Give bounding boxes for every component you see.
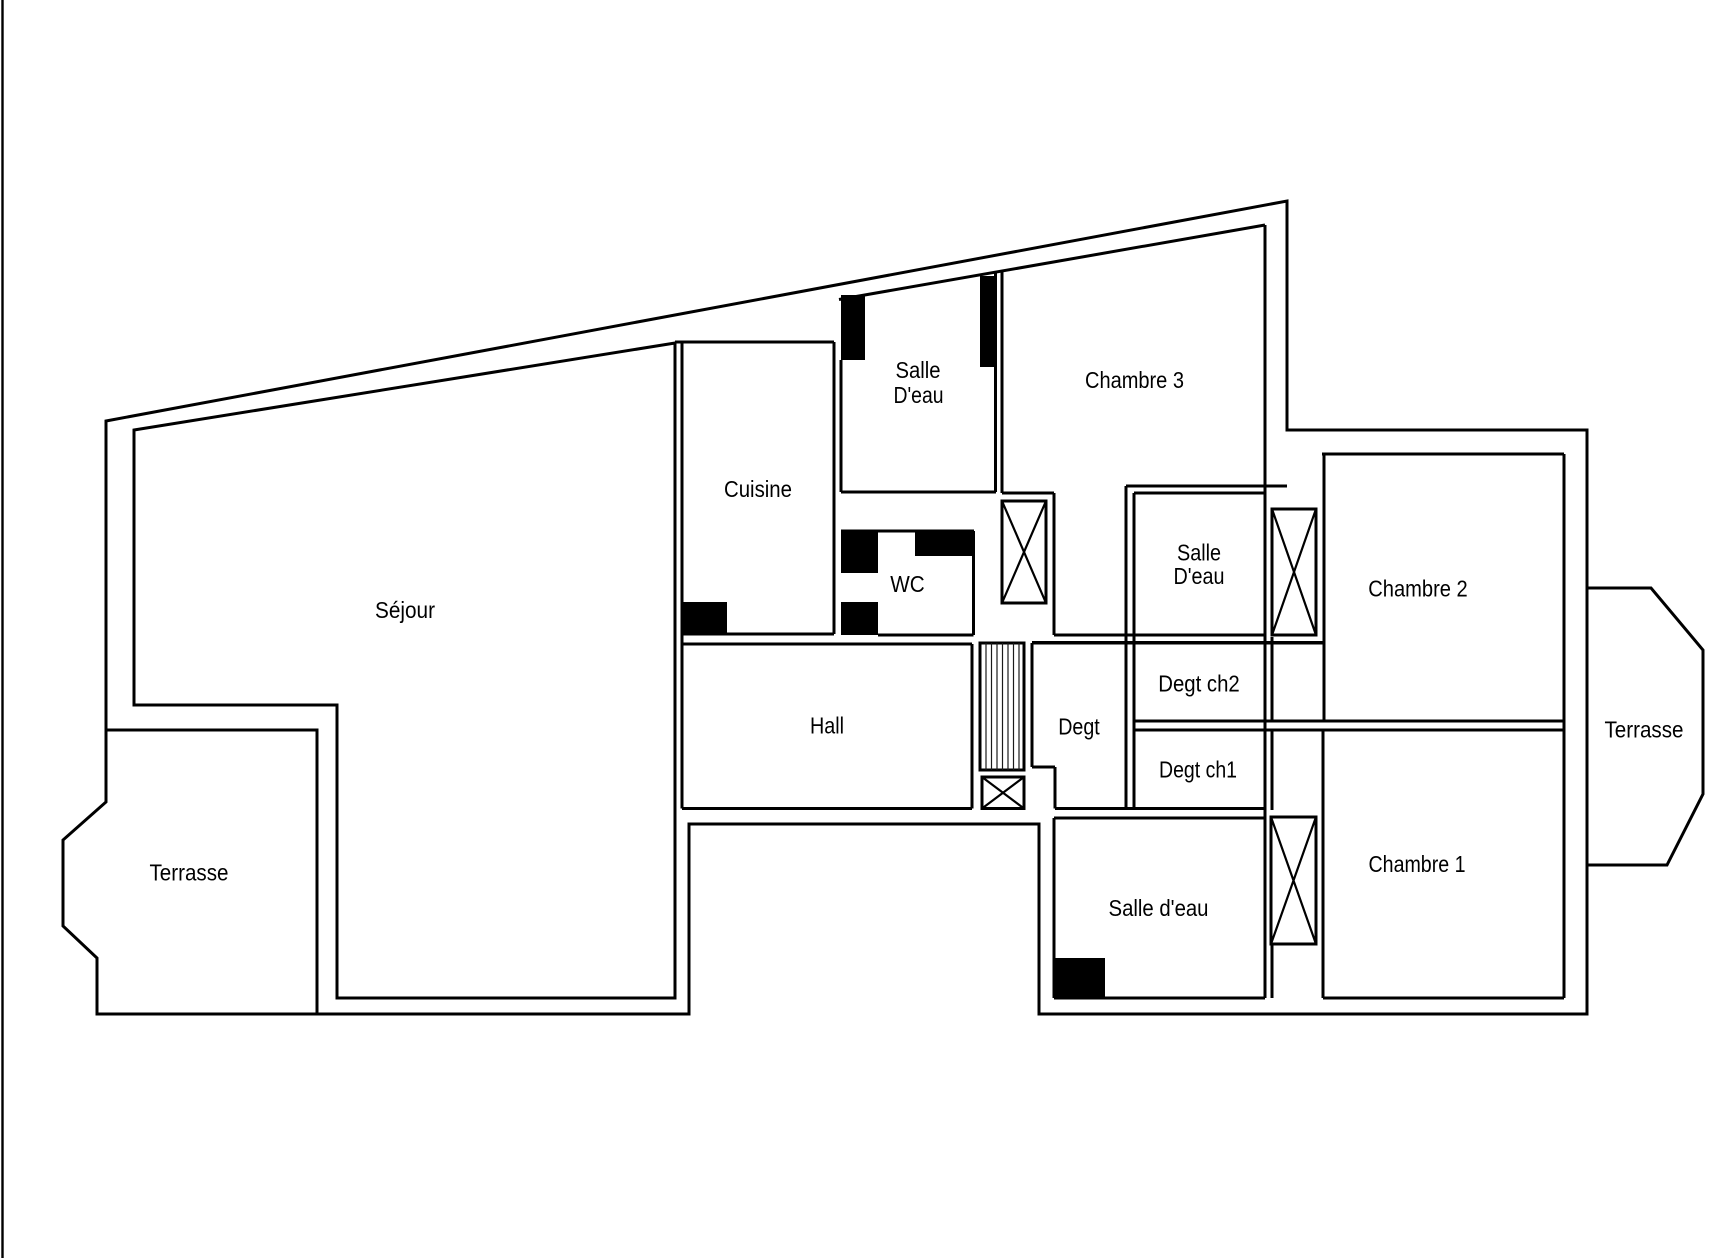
svg-text:Séjour: Séjour [375,597,435,623]
svg-text:D'eau: D'eau [1174,563,1225,589]
svg-text:Cuisine: Cuisine [724,476,792,502]
svg-text:Chambre 3: Chambre 3 [1085,367,1184,393]
svg-text:Degt ch2: Degt ch2 [1158,671,1240,697]
svg-text:Salle: Salle [896,357,941,383]
svg-text:Chambre 1: Chambre 1 [1369,851,1466,877]
svg-text:Chambre 2: Chambre 2 [1368,576,1468,602]
svg-text:Salle d'eau: Salle d'eau [1109,895,1209,921]
svg-text:D'eau: D'eau [894,382,944,408]
svg-text:Degt: Degt [1058,714,1100,740]
svg-text:Degt ch1: Degt ch1 [1159,757,1237,783]
svg-text:Terrasse: Terrasse [150,860,229,886]
svg-text:Terrasse: Terrasse [1605,717,1684,743]
svg-text:Salle: Salle [1177,540,1221,566]
svg-text:Hall: Hall [810,713,844,739]
svg-text:WC: WC [890,571,925,597]
